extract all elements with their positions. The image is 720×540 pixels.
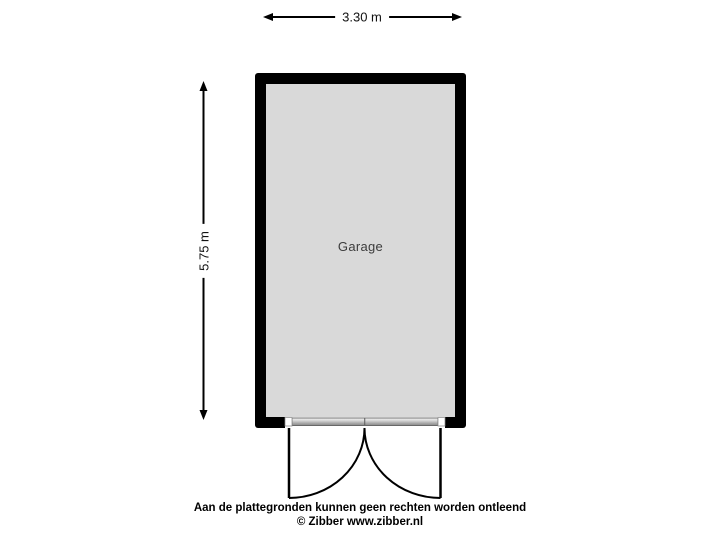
footer: Aan de plattegronden kunnen geen rechten… bbox=[0, 501, 720, 529]
door-frame-marker-right bbox=[438, 418, 445, 427]
arrow-right-icon bbox=[452, 13, 462, 21]
arrow-up-icon bbox=[200, 81, 208, 91]
door-swing-left bbox=[289, 428, 365, 498]
door-frame-marker-left bbox=[285, 418, 292, 427]
floorplan-drawing bbox=[0, 0, 720, 540]
arrow-down-icon bbox=[200, 410, 208, 420]
disclaimer-text: Aan de plattegronden kunnen geen rechten… bbox=[0, 501, 720, 515]
width-dimension-label: 3.30 m bbox=[335, 7, 389, 28]
floorplan-canvas: 3.30 m 5.75 m Garage Aan de plattegronde… bbox=[0, 0, 720, 540]
door-threshold bbox=[285, 418, 445, 427]
door-swing-right bbox=[365, 428, 441, 498]
arrow-left-icon bbox=[263, 13, 273, 21]
height-dimension-label: 5.75 m bbox=[194, 224, 215, 278]
copyright-text: © Zibber www.zibber.nl bbox=[0, 515, 720, 529]
room-label: Garage bbox=[266, 239, 455, 254]
